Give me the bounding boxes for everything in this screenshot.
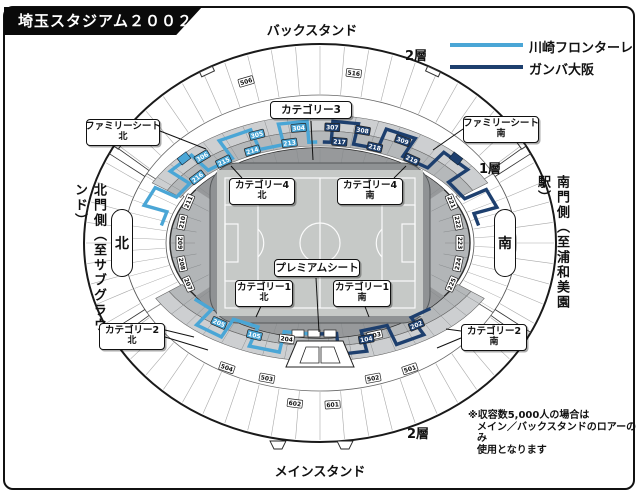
section-tag: 304 [291, 123, 307, 132]
tier2-main-label: 2層 [407, 423, 429, 442]
compass-south-pill: 南 [494, 209, 516, 277]
callout-family-seat-north: ファミリーシート 北 [86, 119, 160, 146]
section-tag: 213 [282, 138, 298, 148]
callout-text: カテゴリー3 [281, 104, 341, 116]
callout-text: プレミアムシート [275, 262, 358, 274]
callout-category2-south: カテゴリー2 南 [461, 324, 527, 351]
callout-family-seat-south: ファミリーシート 南 [463, 116, 539, 143]
stand-foot [270, 441, 286, 449]
note-line: メイン／バックスタンドのロアーのみ [468, 422, 638, 445]
main-stand-label: メインスタンド [260, 461, 380, 480]
section-tag: 204 [279, 334, 295, 344]
section-tag: 217 [332, 137, 348, 146]
callout-text: 北 [118, 133, 127, 143]
callout-category4-north: カテゴリー4 北 [229, 178, 295, 205]
page-title: 埼玉スタジアム２００２ [18, 12, 193, 30]
section-number: 304 [292, 125, 305, 133]
section-tag: 209 [176, 236, 184, 251]
callout-text: 南 [489, 338, 498, 348]
section-tag: 307 [325, 123, 340, 132]
callout-text: 北 [259, 294, 268, 304]
callout-category1-north: カテゴリー1 北 [235, 280, 293, 307]
callout-text: 南 [496, 130, 505, 140]
box-seat [308, 330, 320, 337]
callout-category1-south: カテゴリー1 南 [333, 280, 391, 307]
callout-text: 北 [257, 192, 266, 202]
tier1-label: 1層 [479, 158, 501, 177]
callout-premium-seat: プレミアムシート [274, 259, 360, 277]
callout-category2-north: カテゴリー2 北 [99, 323, 165, 350]
section-tag: 601 [325, 400, 340, 409]
section-number: 209 [176, 237, 183, 250]
section-tag: 516 [346, 68, 362, 78]
back-stand-label: バックスタンド [252, 20, 372, 39]
page: 5065162112102092082072212222232242252042… [0, 0, 640, 495]
south-gate-label: 南門側（至浦和美園駅） [533, 175, 571, 331]
stand-foot [337, 441, 353, 449]
legend-line-kawasaki [450, 43, 523, 47]
note-line: ※収容数5,000人の場合は [468, 410, 638, 422]
section-tag: 602 [287, 398, 303, 408]
section-number: 223 [456, 237, 463, 250]
tier2-back-label: 2層 [405, 45, 427, 64]
callout-text: 南 [365, 192, 374, 202]
box-seat [324, 330, 336, 337]
note-line: 使用となります [468, 445, 638, 457]
section-number: 217 [333, 139, 346, 147]
section-number: 601 [326, 401, 339, 409]
capacity-note: ※収容数5,000人の場合は メイン／バックスタンドのロアーのみ 使用となります [468, 410, 638, 456]
callout-category4-south: カテゴリー4 南 [337, 178, 403, 205]
callout-text: 南 [357, 294, 366, 304]
legend-label-kawasaki: 川崎フロンターレ [529, 37, 633, 56]
legend-line-gamba [450, 65, 523, 69]
main-entrance [286, 341, 354, 367]
callout-text: 北 [127, 337, 136, 347]
compass-north-pill: 北 [111, 209, 133, 277]
section-number: 307 [326, 124, 339, 132]
title-banner: 埼玉スタジアム２００２ [4, 7, 202, 35]
section-tag: 223 [456, 236, 464, 251]
callout-category3: カテゴリー3 [270, 101, 352, 119]
north-gate-label: 北門側（至サブグラウンド） [70, 183, 108, 339]
legend-label-gamba: ガンバ大阪 [529, 59, 594, 78]
